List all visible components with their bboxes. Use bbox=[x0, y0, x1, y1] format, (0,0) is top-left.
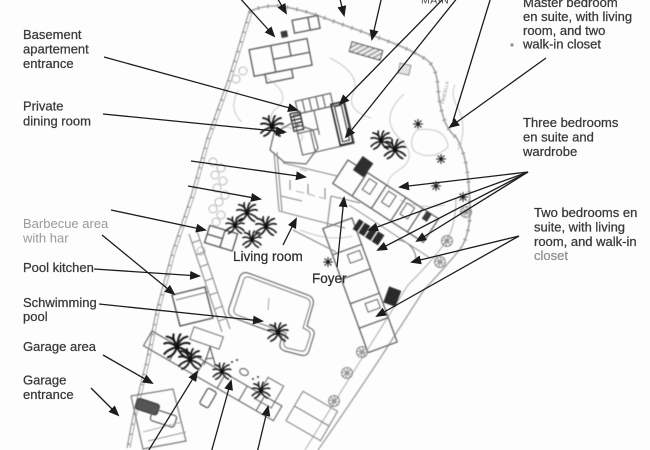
svg-text:suite, with living: suite, with living bbox=[534, 220, 625, 235]
svg-text:MAIN: MAIN bbox=[421, 0, 449, 7]
svg-text:Barbecue area: Barbecue area bbox=[23, 216, 109, 231]
svg-text:Pool kitchen: Pool kitchen bbox=[23, 260, 94, 275]
svg-text:Garage: Garage bbox=[23, 373, 66, 388]
svg-text:walk-in closet: walk-in closet bbox=[522, 37, 601, 52]
svg-text:dining room: dining room bbox=[23, 114, 91, 129]
svg-text:entrance: entrance bbox=[23, 387, 74, 402]
svg-text:entrance: entrance bbox=[23, 56, 74, 71]
svg-text:Schwimming: Schwimming bbox=[23, 295, 97, 310]
svg-text:room, and walk-in: room, and walk-in bbox=[534, 234, 637, 249]
svg-text:Foyer: Foyer bbox=[312, 271, 347, 286]
svg-text:apartement: apartement bbox=[23, 42, 89, 57]
svg-text:Private: Private bbox=[23, 99, 63, 114]
svg-text:pool: pool bbox=[23, 309, 48, 324]
svg-text:Living room: Living room bbox=[233, 249, 303, 264]
svg-text:Basement: Basement bbox=[23, 27, 82, 42]
svg-text:en suite, with living: en suite, with living bbox=[523, 9, 632, 24]
svg-text:closet: closet bbox=[534, 248, 568, 263]
svg-text:Garage area: Garage area bbox=[23, 339, 97, 354]
svg-text:wardrobe: wardrobe bbox=[522, 144, 577, 159]
svg-text:Two bedrooms en: Two bedrooms en bbox=[534, 205, 637, 220]
svg-text:with har: with har bbox=[22, 231, 69, 246]
svg-text:en suite and: en suite and bbox=[523, 130, 594, 145]
svg-text:Three bedrooms: Three bedrooms bbox=[523, 115, 619, 130]
